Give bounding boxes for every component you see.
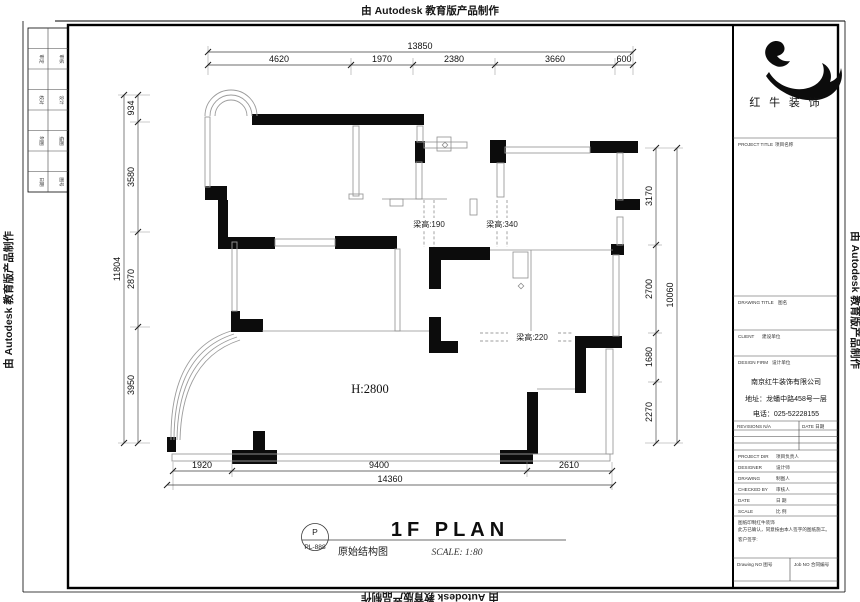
brand-logo-bull-icon <box>765 41 842 100</box>
dim-left-overall: 11804 <box>112 257 122 281</box>
dim-bottom-seg3: 2610 <box>559 460 579 470</box>
tb-date-header: DATE 日期 <box>802 424 825 430</box>
walls-light <box>171 90 623 461</box>
approval-strip: 审定 审核 校对 设计 制图 描图 日期 图号 <box>28 28 68 192</box>
strip-cell: 日期 <box>38 177 44 187</box>
company-address: 地址：龙蟠中路458号一层 <box>745 394 827 403</box>
tb-drawing-cn: 制图人 <box>776 475 790 482</box>
detail-ref-letter: P <box>312 527 318 537</box>
beam-height-label-340: 梁高:340 <box>486 219 518 229</box>
strip-cell: 设计 <box>58 95 65 105</box>
dim-top-overall: 13850 <box>407 41 432 51</box>
tb-designer-cn: 设计师 <box>776 464 790 471</box>
tb-project-dir-cn: 项目负责人 <box>776 453 799 460</box>
dim-left-seg4: 3950 <box>126 375 136 395</box>
dim-top-seg5: 600 <box>616 54 631 64</box>
dim-right-seg2: 2700 <box>644 279 654 299</box>
dim-bottom-overall: 14360 <box>377 474 402 484</box>
beam-height-label-220: 梁高:220 <box>516 332 548 342</box>
floor-plan-drawing: 由 Autodesk 教育版产品制作 由 Autodesk 教育版产品制作 由 … <box>0 0 860 602</box>
dim-bottom-seg2: 9400 <box>369 460 389 470</box>
beam-height-label-190: 梁高:190 <box>413 219 445 229</box>
strip-cell: 制图 <box>38 136 45 146</box>
company-phone: 电话：025-52228155 <box>753 409 819 418</box>
dim-right-seg4: 2270 <box>644 402 654 422</box>
tb-client-cn: 建设单位 <box>762 333 781 340</box>
autodesk-banner-right: 由 Autodesk 教育版产品制作 <box>849 231 860 369</box>
dimension-top: 13850 4620 1970 2380 3660 600 <box>205 41 636 75</box>
strip-cell: 描图 <box>58 136 65 146</box>
dimension-bottom: 1920 9400 2610 14360 <box>164 460 616 490</box>
tb-scale: SCALE <box>738 509 753 514</box>
dim-right-overall: 10060 <box>665 282 675 307</box>
dim-top-seg4: 3660 <box>545 54 565 64</box>
dimension-left: 11804 934 3580 2870 3950 <box>112 92 150 446</box>
dim-bottom-seg1: 1920 <box>192 460 212 470</box>
strip-cell: 审定 <box>38 54 45 64</box>
tb-client: CLIENT <box>738 334 755 339</box>
dim-left-seg1: 934 <box>126 100 136 115</box>
tb-scale-cn: 比 例 <box>776 508 787 515</box>
tb-drawing-no: Drawing NO 图号 <box>737 562 773 568</box>
tb-date: DATE <box>738 498 750 503</box>
tb-note-line3: 客户签字: <box>738 536 758 543</box>
plan-scale: SCALE: 1:80 <box>432 548 483 558</box>
tb-date-cn: 日 期 <box>776 498 787 504</box>
cad-sheet: 由 Autodesk 教育版产品制作 由 Autodesk 教育版产品制作 由 … <box>0 0 860 602</box>
brand-name: 红 牛 装 饰 <box>749 95 822 109</box>
walls-structural <box>167 114 640 464</box>
autodesk-banner-bottom: 由 Autodesk 教育版产品制作 <box>361 591 499 602</box>
tb-drawing-title-cn: 图名 <box>778 299 787 306</box>
dim-right-seg3: 1680 <box>644 347 654 367</box>
tb-checked-cn: 审核人 <box>776 486 790 493</box>
dim-top-seg1: 4620 <box>269 54 289 64</box>
tb-project-title: PROJECT TITLE <box>738 142 773 147</box>
plan-subtitle: 原始结构图 <box>338 545 388 558</box>
tb-project-dir: PROJECT DIR <box>738 454 769 459</box>
tb-drawing: DRAWING <box>738 476 760 481</box>
tb-designer: DESIGNER <box>738 465 763 470</box>
drawing-title-group: P PL-888 1F PLAN 原始结构图 SCALE: 1:80 <box>302 519 567 558</box>
tb-note-line2: 此方已确认，同意按由本人签字的图纸施工。 <box>738 526 830 533</box>
tb-drawing-title: DRAWING TITLE <box>738 300 774 305</box>
tb-revisions: REVISIONS N/A <box>737 424 772 429</box>
tb-design-firm: DESIGN FIRM <box>738 360 768 365</box>
dim-right-seg1: 3170 <box>644 186 654 206</box>
plan-title: 1F PLAN <box>391 519 509 541</box>
dim-top-seg3: 2380 <box>444 54 464 64</box>
autodesk-banner-left: 由 Autodesk 教育版产品制作 <box>2 231 15 369</box>
dim-left-seg3: 2870 <box>126 269 136 289</box>
strip-cell: 校对 <box>38 95 45 105</box>
tb-checked: CHECKED BY <box>738 487 768 492</box>
tb-note-line1: 图纸印制红牛装饰 <box>738 519 775 526</box>
tb-project-title-cn: 项目名称 <box>775 141 794 148</box>
autodesk-banner-top: 由 Autodesk 教育版产品制作 <box>361 4 499 17</box>
sheet-border <box>23 21 845 592</box>
tb-job-no: Job NO 合同编号 <box>794 561 830 568</box>
dim-top-seg2: 1970 <box>372 54 392 64</box>
tb-design-firm-cn: 设计单位 <box>772 359 791 366</box>
ceiling-height-label: H:2800 <box>351 382 389 396</box>
dim-left-seg2: 3580 <box>126 167 136 187</box>
strip-cell: 图号 <box>58 177 64 187</box>
title-block: 红 牛 装 饰 PROJECT TITLE 项目名称 DRAWING TITLE… <box>733 41 842 581</box>
dimension-right: 3170 2700 1680 2270 10060 <box>644 145 683 446</box>
detail-ref-number: PL-888 <box>304 544 326 551</box>
strip-cell: 审核 <box>58 54 65 64</box>
company-name: 南京红牛装饰有限公司 <box>751 377 821 386</box>
